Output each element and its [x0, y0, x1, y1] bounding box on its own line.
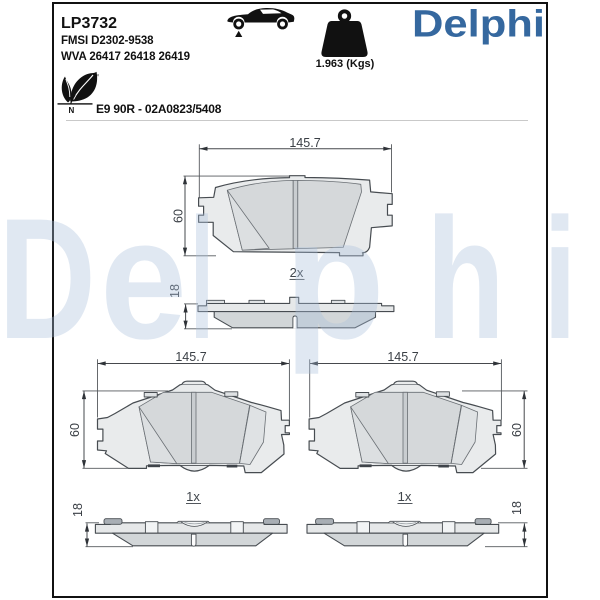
svg-text:145.7: 145.7	[289, 136, 320, 150]
svg-text:1x: 1x	[398, 489, 412, 504]
svg-text:2x: 2x	[290, 265, 304, 280]
svg-text:145.7: 145.7	[175, 350, 206, 364]
svg-text:60: 60	[510, 423, 524, 437]
svg-text:145.7: 145.7	[387, 350, 418, 364]
svg-text:1x: 1x	[186, 489, 200, 504]
svg-text:18: 18	[168, 284, 182, 298]
svg-text:18: 18	[71, 503, 85, 517]
svg-text:60: 60	[172, 209, 186, 223]
svg-text:60: 60	[68, 423, 82, 437]
svg-text:18: 18	[510, 501, 524, 515]
